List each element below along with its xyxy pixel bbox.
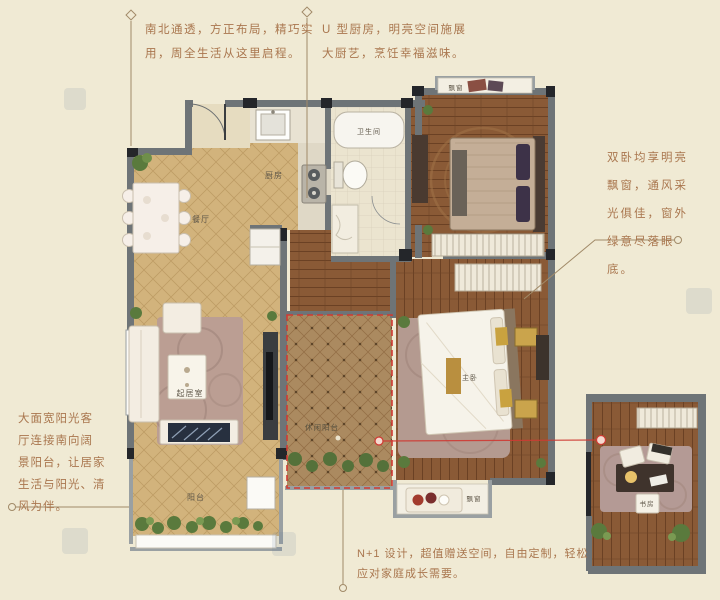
label-balcony: 阳台: [187, 492, 205, 502]
annotation-line: N+1 设计，超值赠送空间，自由定制，轻松: [357, 544, 589, 564]
label-bathroom: 卫生间: [357, 127, 381, 136]
annotation-left: 大面宽阳光客 厅连接南向阔 景阳台，让居家 生活与阳光、清 风为伴。: [18, 408, 120, 518]
floorplan-page: { "background": "#f0ead4", "annotations"…: [0, 0, 720, 600]
leisure-balcony-floor: [287, 315, 392, 488]
annotation-line: 光俱佳，窗外: [607, 200, 703, 228]
annotation-line: U 型厨房，明亮空间施展: [322, 18, 467, 42]
annotation-line: 应对家庭成长需要。: [357, 564, 589, 584]
hall-floor-1: [290, 230, 331, 313]
toilet-icon: [343, 161, 367, 189]
watermark: [272, 532, 296, 556]
watermark: [62, 528, 88, 554]
circle-marker: [9, 504, 16, 511]
bed-bench: [446, 358, 461, 394]
annotation-line: 风为伴。: [18, 496, 120, 518]
study-shelf: [637, 408, 697, 428]
desk-lamp-icon: [625, 471, 637, 483]
annotation-line: 厅连接南向阔: [18, 430, 120, 452]
annotation-line: 用，周全生活从这里启程。: [145, 42, 314, 66]
label-master-bedroom: 主卧: [462, 373, 478, 382]
bed2-bench: [452, 150, 467, 216]
annotation-line: 底。: [607, 256, 703, 284]
diamond-marker: [302, 7, 312, 17]
hall-shelf: [412, 135, 428, 203]
diamond-marker: [126, 10, 136, 20]
plant-icon: [398, 456, 410, 468]
sofa: [129, 326, 159, 422]
annotation-line: 双卧均享明亮: [607, 144, 703, 172]
armchair: [163, 303, 201, 333]
circle-marker: [340, 585, 347, 592]
label-leisure-balcony: 休闲阳台: [305, 422, 339, 432]
plant-icon: [423, 225, 433, 235]
bed2-pillow: [516, 186, 530, 222]
nightstand: [515, 400, 537, 418]
watermark: [64, 88, 86, 110]
master-closet: [455, 264, 541, 291]
master-wardrobe: [536, 335, 549, 380]
throw-blanket: [168, 423, 230, 442]
shower-icon: [332, 205, 358, 253]
annotation-right: 双卧均享明亮 飘窗，通风采 光俱佳，窗外 绿意尽落眼 底。: [607, 144, 703, 284]
label-bay-window-top: 飘窗: [449, 83, 464, 92]
annotation-line: 飘窗，通风采: [607, 172, 703, 200]
annotation-line: 大厨艺，烹饪幸福滋味。: [322, 42, 467, 66]
label-kitchen: 厨房: [265, 170, 283, 180]
annotation-line: 生活与阳光、清: [18, 474, 120, 496]
balcony-sill: [136, 535, 276, 548]
annotation-top-right: U 型厨房，明亮空间施展 大厨艺，烹饪幸福滋味。: [322, 18, 467, 66]
kitchen-floor: [250, 143, 298, 230]
plant-icon: [423, 105, 433, 115]
plant-icon: [130, 307, 142, 319]
annotation-top-left: 南北通透，方正布局，精巧实 用，周全生活从这里启程。: [145, 18, 314, 66]
label-study: 书房: [640, 499, 655, 508]
watermark: [686, 288, 712, 314]
red-circle-marker: [375, 437, 383, 445]
label-dining: 餐厅: [192, 215, 210, 224]
annotation-line: 景阳台，让居家: [18, 452, 120, 474]
label-bay-window-bottom: 飘窗: [467, 494, 482, 503]
annotation-line: 南北通透，方正布局，精巧实: [145, 18, 314, 42]
annotation-line: 大面宽阳光客: [18, 408, 120, 430]
washer-icon: [247, 477, 275, 509]
wardrobe2: [432, 234, 544, 256]
plant-icon: [398, 316, 410, 328]
annotation-bottom: N+1 设计，超值赠送空间，自由定制，轻松 应对家庭成长需要。: [357, 544, 589, 584]
plant-icon: [536, 458, 546, 468]
nightstand: [515, 328, 537, 346]
red-circle-marker: [597, 436, 606, 445]
entry-floor: [189, 104, 251, 150]
plant-icon: [267, 311, 277, 321]
label-living: 起居室: [177, 388, 204, 398]
annotation-line: 绿意尽落眼: [607, 228, 703, 256]
bed2-pillow: [516, 144, 530, 180]
